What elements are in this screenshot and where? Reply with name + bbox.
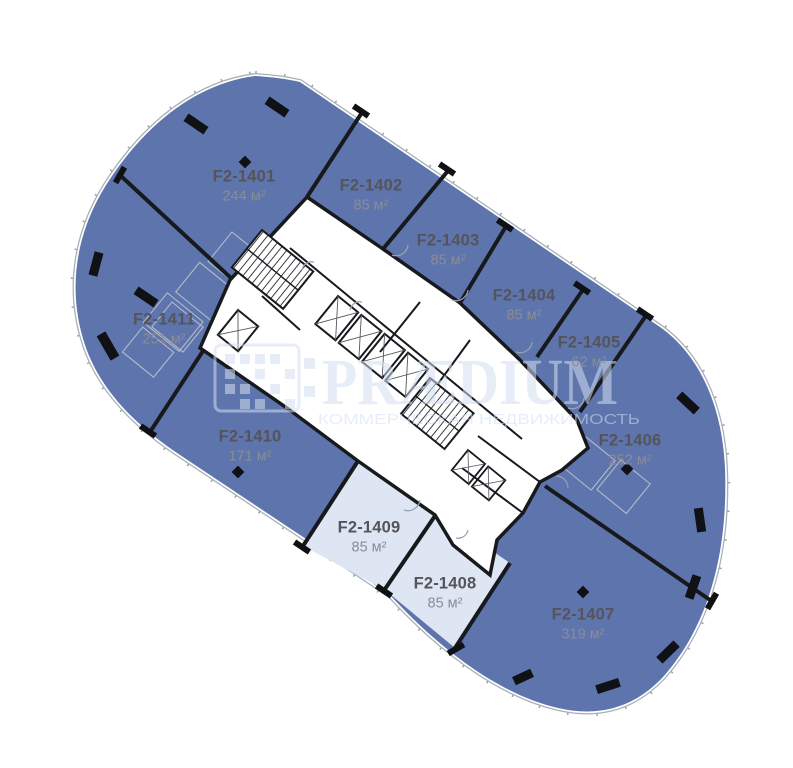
unit-label-f2-1410[interactable]: F2-1410171 м²: [219, 427, 282, 466]
unit-label-f2-1403[interactable]: F2-140385 м²: [417, 231, 480, 270]
unit-id: F2-1405: [558, 333, 621, 354]
unit-id: F2-1409: [338, 518, 401, 539]
unit-id: F2-1410: [219, 427, 282, 448]
unit-area: 171 м²: [219, 447, 282, 465]
unit-label-f2-1408[interactable]: F2-140885 м²: [414, 574, 477, 613]
unit-label-f2-1406[interactable]: F2-1406252 м²: [599, 431, 662, 470]
unit-area: 252 м²: [599, 451, 662, 469]
unit-label-f2-1401[interactable]: F2-1401244 м²: [213, 167, 276, 206]
unit-id: F2-1406: [599, 431, 662, 452]
unit-label-f2-1402[interactable]: F2-140285 м²: [340, 176, 403, 215]
unit-area: 85 м²: [493, 306, 556, 324]
floorplan-canvas: PRÆDIUM КОММЕРЧЕСКАЯ НЕДВИЖИМОСТЬ F2-140…: [0, 0, 793, 768]
unit-id: F2-1408: [414, 574, 477, 595]
unit-labels-layer: F2-1401244 м²F2-140285 м²F2-140385 м²F2-…: [0, 0, 793, 768]
unit-label-f2-1404[interactable]: F2-140485 м²: [493, 286, 556, 325]
unit-label-f2-1411[interactable]: F2-1411251 м²: [133, 310, 195, 349]
unit-label-f2-1407[interactable]: F2-1407319 м²: [552, 605, 615, 644]
unit-id: F2-1404: [493, 286, 556, 307]
unit-id: F2-1401: [213, 167, 276, 188]
unit-area: 85 м²: [414, 594, 477, 612]
unit-area: 85 м²: [417, 251, 480, 269]
unit-label-f2-1409[interactable]: F2-140985 м²: [338, 518, 401, 557]
unit-id: F2-1402: [340, 176, 403, 197]
unit-id: F2-1403: [417, 231, 480, 252]
unit-area: 62 м²: [558, 353, 621, 371]
unit-area: 251 м²: [133, 330, 195, 348]
unit-label-f2-1405[interactable]: F2-140562 м²: [558, 333, 621, 372]
unit-area: 85 м²: [338, 538, 401, 556]
unit-area: 319 м²: [552, 625, 615, 643]
unit-area: 244 м²: [213, 187, 276, 205]
unit-id: F2-1407: [552, 605, 615, 626]
unit-area: 85 м²: [340, 196, 403, 214]
unit-id: F2-1411: [133, 310, 195, 331]
